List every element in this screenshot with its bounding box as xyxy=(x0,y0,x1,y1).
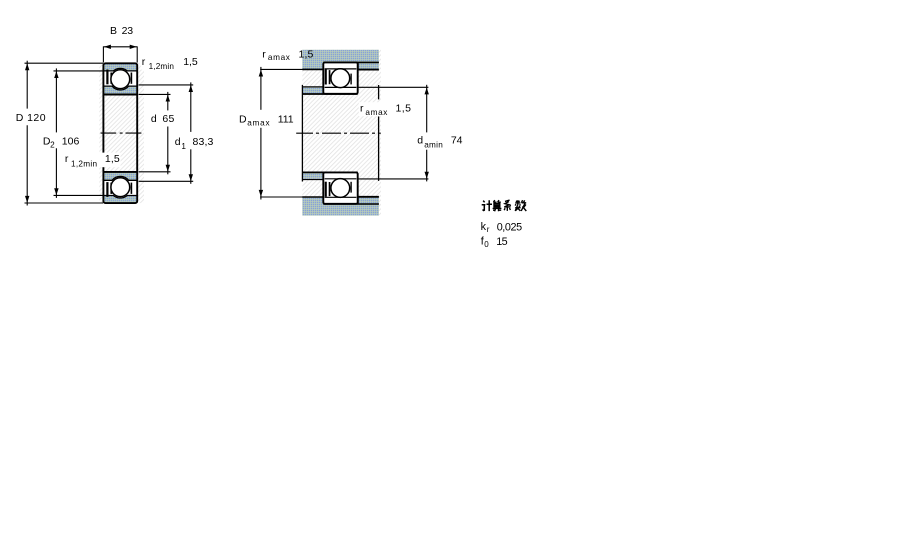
svg-text:amax: amax xyxy=(247,119,269,128)
svg-text:0,025: 0,025 xyxy=(497,222,522,234)
svg-text:d: d xyxy=(417,135,423,147)
svg-text:111: 111 xyxy=(278,113,294,125)
svg-text:amin: amin xyxy=(424,141,443,150)
svg-text:74: 74 xyxy=(451,135,463,147)
svg-text:23: 23 xyxy=(122,25,134,37)
svg-text:r: r xyxy=(487,225,490,234)
svg-text:r: r xyxy=(360,103,364,115)
svg-text:120: 120 xyxy=(27,112,46,124)
svg-text:amax: amax xyxy=(365,108,387,117)
svg-text:D: D xyxy=(16,112,24,124)
svg-text:1: 1 xyxy=(181,142,186,151)
svg-text:1,5: 1,5 xyxy=(105,153,120,165)
svg-text:r: r xyxy=(142,56,146,68)
svg-text:1,2min: 1,2min xyxy=(71,160,97,169)
svg-text:106: 106 xyxy=(62,135,80,147)
svg-text:0: 0 xyxy=(484,240,489,249)
svg-text:d: d xyxy=(151,113,157,125)
svg-text:k: k xyxy=(481,221,487,233)
svg-text:1,2min: 1,2min xyxy=(149,62,175,71)
svg-text:15: 15 xyxy=(496,236,507,248)
svg-text:1,5: 1,5 xyxy=(183,56,198,68)
svg-text:1,5: 1,5 xyxy=(396,103,412,115)
svg-text:65: 65 xyxy=(162,113,174,125)
svg-text:amax: amax xyxy=(268,53,290,62)
svg-text:1,5: 1,5 xyxy=(299,49,314,61)
svg-text:2: 2 xyxy=(50,141,55,150)
svg-text:d: d xyxy=(175,136,181,148)
svg-text:r: r xyxy=(65,153,69,165)
svg-text:B: B xyxy=(110,25,117,37)
svg-text:D: D xyxy=(239,113,247,125)
svg-text:r: r xyxy=(262,49,266,61)
svg-text:83,3: 83,3 xyxy=(193,136,214,148)
